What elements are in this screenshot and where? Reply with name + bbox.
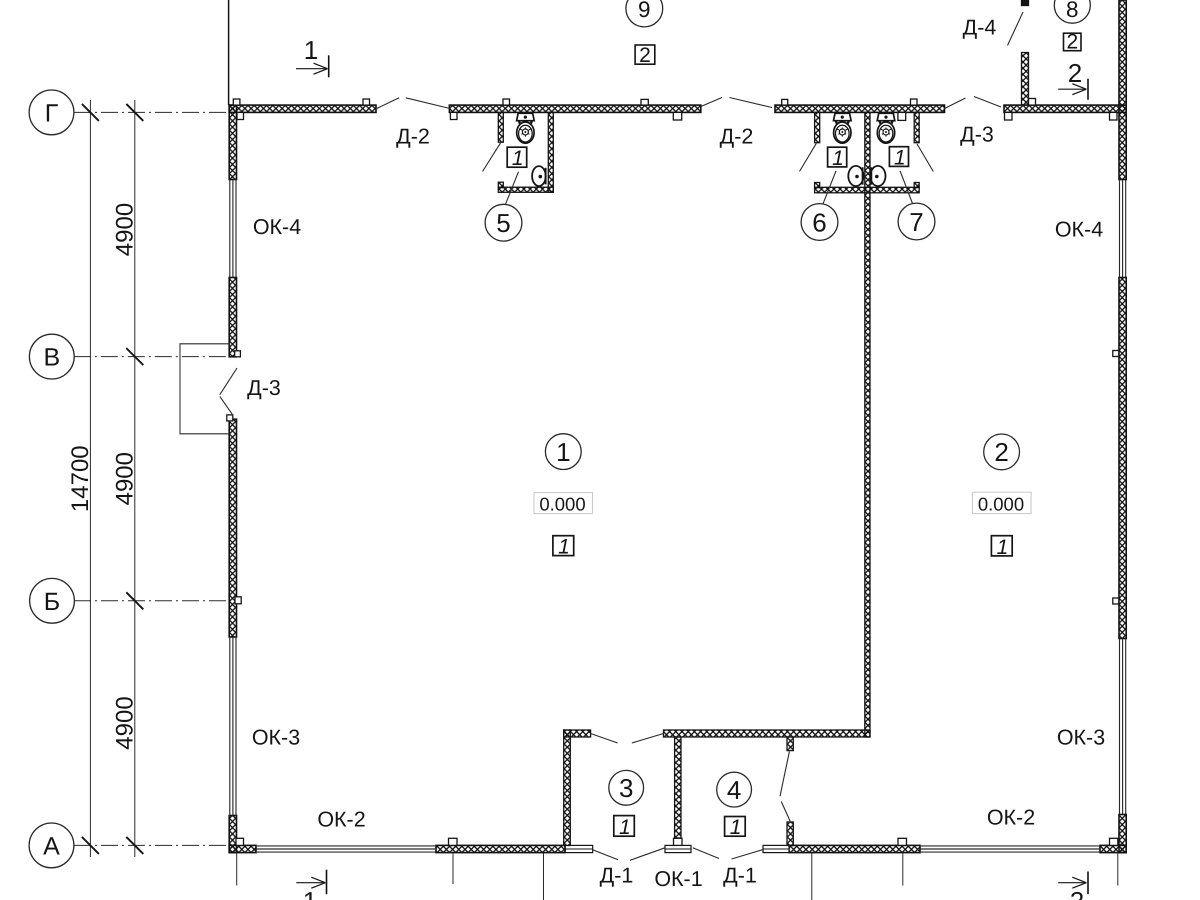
svg-text:1: 1 <box>558 536 570 559</box>
svg-text:9: 9 <box>638 0 651 22</box>
svg-text:14700: 14700 <box>67 445 94 512</box>
svg-text:Д-3: Д-3 <box>960 123 994 147</box>
svg-text:ОК-3: ОК-3 <box>252 726 300 750</box>
svg-text:5: 5 <box>496 208 510 238</box>
svg-text:1: 1 <box>832 147 844 170</box>
svg-text:1: 1 <box>997 536 1009 559</box>
svg-text:2: 2 <box>1066 31 1078 54</box>
svg-text:Д-1: Д-1 <box>600 864 634 888</box>
svg-text:ОК-2: ОК-2 <box>987 806 1035 830</box>
svg-text:ОК-4: ОК-4 <box>253 215 301 239</box>
svg-text:3: 3 <box>619 773 633 803</box>
svg-text:4: 4 <box>727 775 741 805</box>
svg-text:ОК-3: ОК-3 <box>1057 726 1105 750</box>
svg-text:4900: 4900 <box>112 203 139 256</box>
svg-text:1: 1 <box>304 35 318 65</box>
svg-text:2: 2 <box>1070 886 1084 900</box>
svg-text:2: 2 <box>994 437 1008 467</box>
svg-text:1: 1 <box>303 886 317 900</box>
svg-text:1: 1 <box>512 147 524 170</box>
svg-text:Д-2: Д-2 <box>396 124 430 148</box>
svg-text:1: 1 <box>894 147 906 170</box>
svg-text:1: 1 <box>556 437 570 467</box>
svg-text:0.000: 0.000 <box>978 493 1024 514</box>
svg-text:В: В <box>43 344 60 372</box>
svg-text:Д-4: Д-4 <box>963 16 997 40</box>
svg-text:ОК-2: ОК-2 <box>317 808 365 832</box>
svg-text:4900: 4900 <box>112 696 139 749</box>
svg-text:ОК-1: ОК-1 <box>654 867 702 891</box>
svg-text:1: 1 <box>730 816 742 839</box>
svg-text:6: 6 <box>812 207 826 237</box>
svg-text:Г: Г <box>45 99 59 127</box>
svg-text:А: А <box>43 832 60 860</box>
svg-text:7: 7 <box>909 207 923 237</box>
svg-text:1: 1 <box>619 816 631 839</box>
svg-text:2: 2 <box>1068 58 1082 88</box>
svg-text:2: 2 <box>639 44 651 67</box>
svg-text:Д-1: Д-1 <box>723 864 757 888</box>
svg-text:0.000: 0.000 <box>539 493 585 514</box>
svg-text:ОК-4: ОК-4 <box>1055 218 1103 242</box>
svg-text:Д-3: Д-3 <box>247 376 281 400</box>
svg-text:4900: 4900 <box>112 452 139 505</box>
svg-text:Д-2: Д-2 <box>720 124 754 148</box>
svg-text:8: 8 <box>1066 0 1079 22</box>
svg-text:Б: Б <box>44 588 60 616</box>
